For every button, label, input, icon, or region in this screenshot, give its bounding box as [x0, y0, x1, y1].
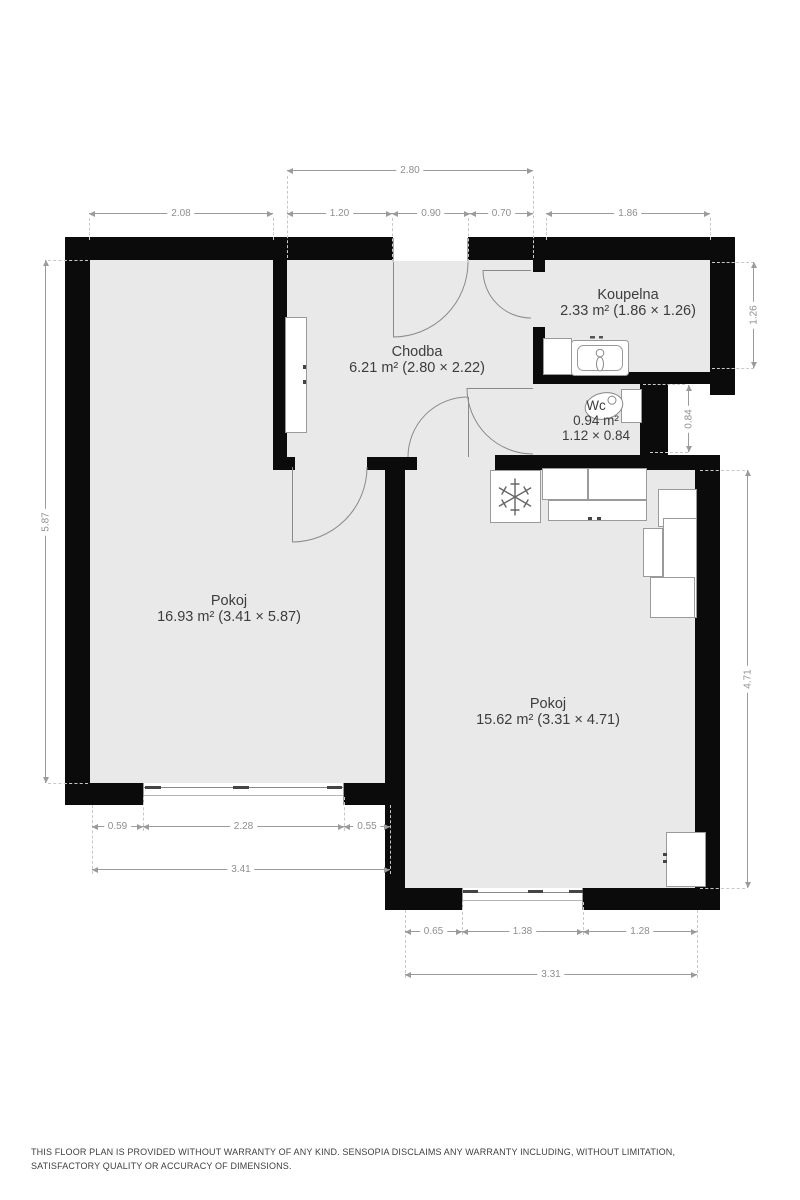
- extension-line: [697, 910, 698, 978]
- dim-top-1: 2.08: [89, 213, 273, 214]
- extension-line: [712, 368, 754, 369]
- room-size: 1.12 × 0.84: [562, 428, 630, 443]
- room-area: 15.62 m² (3.31 × 4.71): [476, 712, 620, 728]
- left-room-door-arc: [292, 467, 367, 542]
- room-name: Pokoj: [157, 594, 301, 610]
- room-label-chodba: Chodba 6.21 m² (2.80 × 2.22): [349, 345, 485, 376]
- plan-overlay: [0, 0, 800, 1200]
- right-room-door-arc: [408, 397, 468, 457]
- extension-line: [700, 888, 745, 889]
- floor-plan-canvas: 2.80 2.08 1.20 0.90 0.70 1.86 5.87 1.26 …: [0, 0, 800, 1200]
- dim-bottom-left-2: 2.28: [143, 826, 344, 827]
- dim-top-5: 1.86: [546, 213, 710, 214]
- room-area: 6.21 m² (2.80 × 2.22): [349, 360, 485, 376]
- extension-line: [92, 805, 93, 874]
- room-name: Wc: [562, 398, 630, 413]
- snowflake-icon: [499, 479, 530, 515]
- room-label-pokoj-left: Pokoj 16.93 m² (3.41 × 5.87): [157, 594, 301, 625]
- extension-line: [643, 384, 685, 385]
- extension-line: [405, 910, 406, 978]
- dim-top-4: 0.70: [470, 213, 533, 214]
- room-label-wc: Wc 0.94 m² 1.12 × 0.84: [562, 398, 630, 443]
- room-name: Koupelna: [560, 288, 696, 304]
- dim-right-wc: 0.84: [688, 385, 689, 452]
- dim-left-total: 5.87: [45, 260, 46, 783]
- extension-line: [712, 262, 754, 263]
- dim-bottom-left-total: 3.41: [92, 869, 390, 870]
- extension-line: [546, 218, 547, 240]
- extension-line: [533, 176, 534, 258]
- wc-door-arc: [467, 388, 533, 454]
- room-area: 2.33 m² (1.86 × 1.26): [560, 303, 696, 319]
- extension-line: [710, 218, 711, 240]
- extension-line: [700, 470, 745, 471]
- extension-line: [390, 805, 391, 874]
- door-arcs: [292, 262, 533, 542]
- dim-bottom-right-3: 1.28: [583, 931, 697, 932]
- extension-line: [48, 783, 88, 784]
- disclaimer-text: THIS FLOOR PLAN IS PROVIDED WITHOUT WARR…: [31, 1146, 746, 1173]
- extension-line: [287, 176, 288, 258]
- room-label-koupelna: Koupelna 2.33 m² (1.86 × 1.26): [560, 288, 696, 319]
- dim-bottom-right-2: 1.38: [462, 931, 583, 932]
- dim-top-total: 2.80: [287, 170, 533, 171]
- dim-top-3: 0.90: [392, 213, 470, 214]
- extension-line: [392, 218, 393, 262]
- entrance-jamb-lines: [394, 238, 468, 261]
- room-area: 0.94 m²: [562, 413, 630, 428]
- extension-line: [273, 218, 274, 240]
- dim-top-2: 1.20: [287, 213, 392, 214]
- extension-line: [89, 218, 90, 240]
- dim-bottom-left-1: 0.59: [92, 826, 143, 827]
- room-name: Pokoj: [476, 697, 620, 713]
- dim-bottom-right-total: 3.31: [405, 974, 697, 975]
- extension-line: [650, 452, 688, 453]
- dim-right-bathroom: 1.26: [753, 262, 754, 368]
- room-area: 16.93 m² (3.41 × 5.87): [157, 609, 301, 625]
- dim-bottom-left-3: 0.55: [344, 826, 390, 827]
- room-label-pokoj-right: Pokoj 15.62 m² (3.31 × 4.71): [476, 697, 620, 728]
- dim-bottom-right-1: 0.65: [405, 931, 462, 932]
- sink-icon: [572, 336, 629, 376]
- extension-line: [48, 260, 88, 261]
- room-name: Chodba: [349, 345, 485, 361]
- dim-right-room: 4.71: [747, 470, 748, 888]
- entrance-door-arc: [393, 262, 468, 337]
- bathroom-door-arc: [483, 270, 531, 318]
- extension-line: [468, 218, 469, 262]
